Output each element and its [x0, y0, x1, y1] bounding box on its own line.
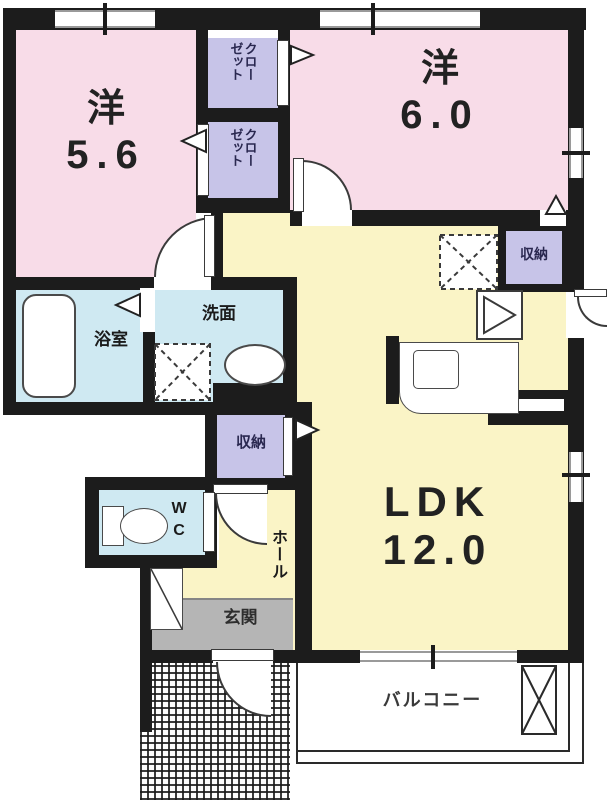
bedroom-b-size: 6.0 [365, 92, 515, 138]
wall-ldk-bottom-1 [295, 650, 360, 663]
closet-top-col-right: クロー [244, 42, 257, 106]
wall-bedroom-a-bottom [3, 277, 154, 290]
doorway-bedroom-b-storage [540, 210, 566, 226]
label-entrance: 玄関 [203, 608, 278, 628]
label-closet-bottom: ゼットクロー [210, 128, 276, 194]
closet-bottom-col-left: ゼット [230, 128, 243, 194]
label-bedroom-b: 洋 6.0 [365, 48, 515, 138]
kitchen-sink [413, 350, 459, 389]
door-leaf-bedroom-a [204, 215, 215, 277]
door-leaf-wc [203, 492, 215, 552]
window-tick [431, 645, 435, 669]
wc-line1: W [161, 498, 197, 520]
window-tick [562, 473, 590, 477]
label-ldk: LDK 12.0 [345, 478, 530, 575]
label-storage-hall: 収納 [217, 434, 285, 451]
label-storage-kitchen: 収納 [506, 246, 562, 262]
closet-bottom-col-right: クロー [244, 128, 257, 194]
door-leaf-closet-bottom [197, 124, 209, 196]
ldk-type: LDK [345, 478, 530, 526]
window-balcony-door [360, 651, 517, 662]
doorway-bedroom-a [154, 277, 211, 290]
window-tick [371, 3, 375, 35]
wall-ldk-left [295, 402, 312, 652]
doorway-bathroom [140, 288, 155, 332]
label-bedroom-a: 洋 5.6 [26, 88, 186, 178]
bedroom-a-type: 洋 [26, 88, 186, 132]
ldk-size: 12.0 [345, 526, 530, 574]
doorway-bedroom-b [302, 210, 352, 226]
floor-plan: 洋 5.6 洋 6.0 LDK 12.0 浴室 洗面 W C ホール 玄関 バル… [0, 0, 607, 800]
door-leaf-front [211, 649, 274, 661]
wall-bedroom-b-bottom-1 [290, 210, 302, 226]
label-bathroom: 浴室 [78, 330, 144, 350]
wall-bath-divider [143, 330, 155, 402]
bedroom-a-size: 5.6 [26, 132, 186, 178]
label-closet-top: ゼットクロー [210, 42, 276, 106]
window-ldk-right [569, 452, 583, 502]
wall-entrance-bottom-1 [140, 650, 213, 663]
window-bedroom-b-top [320, 10, 480, 28]
window-tick [103, 3, 107, 35]
label-wc: W C [161, 498, 197, 543]
door-leaf-bedroom-b [293, 158, 304, 212]
wall-left [3, 8, 16, 415]
wall-ldk-bottom-2 [517, 650, 584, 663]
wc-line2: C [161, 520, 197, 542]
washbasin [224, 344, 286, 386]
hall-upper-floor [223, 211, 300, 280]
wall-kitchen-stub [386, 336, 399, 404]
window-tick [562, 151, 590, 155]
bathtub [22, 294, 76, 398]
wall-entrance-bottom-2 [273, 650, 295, 663]
door-leaf-closet-top [277, 40, 289, 106]
label-balcony: バルコニー [360, 690, 505, 711]
door-leaf-service [574, 289, 607, 297]
door-leaf-hall [213, 484, 268, 494]
closet-top-col-left: ゼット [230, 42, 243, 106]
label-hall: ホール [258, 512, 286, 596]
shoe-cabinet [150, 568, 183, 630]
label-washroom: 洗面 [186, 304, 252, 324]
bedroom-b-type: 洋 [365, 48, 515, 92]
wall-closet-divider [196, 108, 290, 122]
